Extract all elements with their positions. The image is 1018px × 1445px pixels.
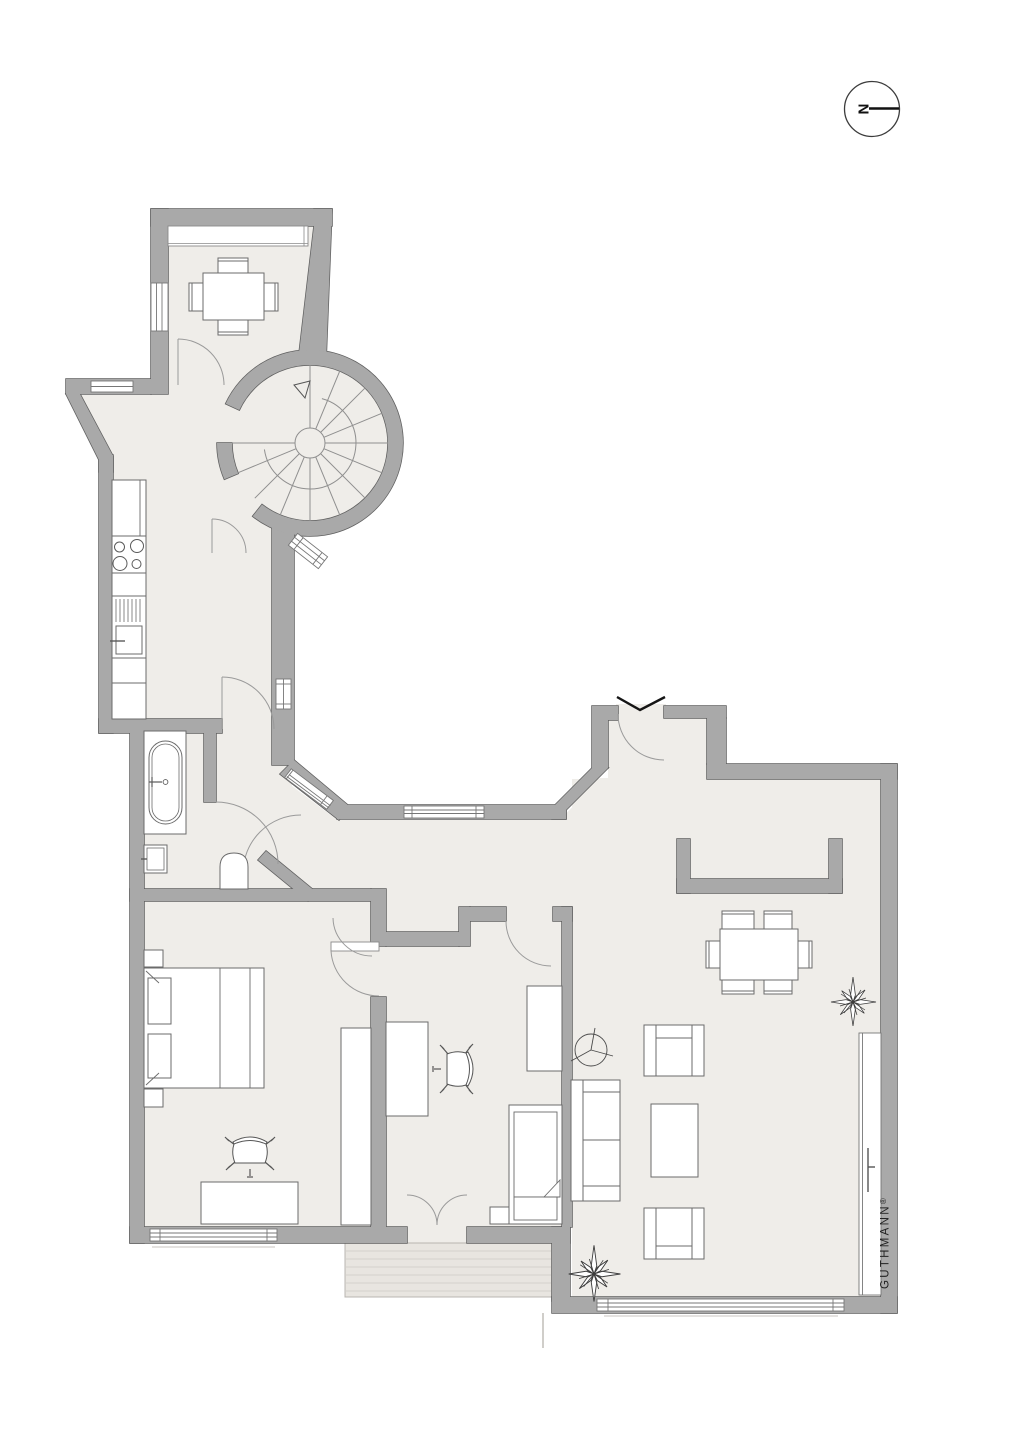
svg-text:N: N: [855, 104, 872, 115]
svg-text:GUTHMANN®: GUTHMANN®: [879, 1196, 892, 1289]
